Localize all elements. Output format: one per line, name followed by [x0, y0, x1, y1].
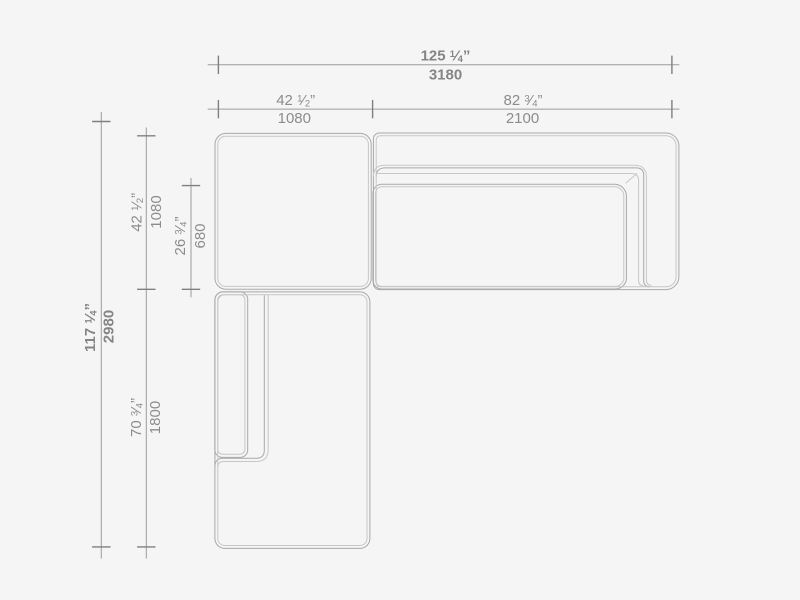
svg-text:2100: 2100: [506, 110, 539, 127]
svg-text:42 1⁄2”: 42 1⁄2”: [276, 92, 315, 110]
svg-text:1080: 1080: [148, 195, 165, 228]
svg-text:1080: 1080: [278, 110, 311, 127]
svg-text:70 3⁄4”: 70 3⁄4”: [128, 398, 146, 437]
svg-text:82 3⁄4”: 82 3⁄4”: [504, 92, 543, 110]
svg-text:680: 680: [192, 223, 209, 248]
svg-text:125 1⁄4”: 125 1⁄4”: [421, 48, 471, 66]
svg-text:3180: 3180: [429, 66, 462, 83]
svg-text:42 1⁄2”: 42 1⁄2”: [129, 193, 147, 232]
svg-text:1800: 1800: [147, 401, 164, 434]
svg-text:117 1⁄4”: 117 1⁄4”: [82, 303, 100, 352]
svg-text:26 3⁄4”: 26 3⁄4”: [172, 217, 190, 256]
svg-text:2980: 2980: [101, 310, 118, 343]
